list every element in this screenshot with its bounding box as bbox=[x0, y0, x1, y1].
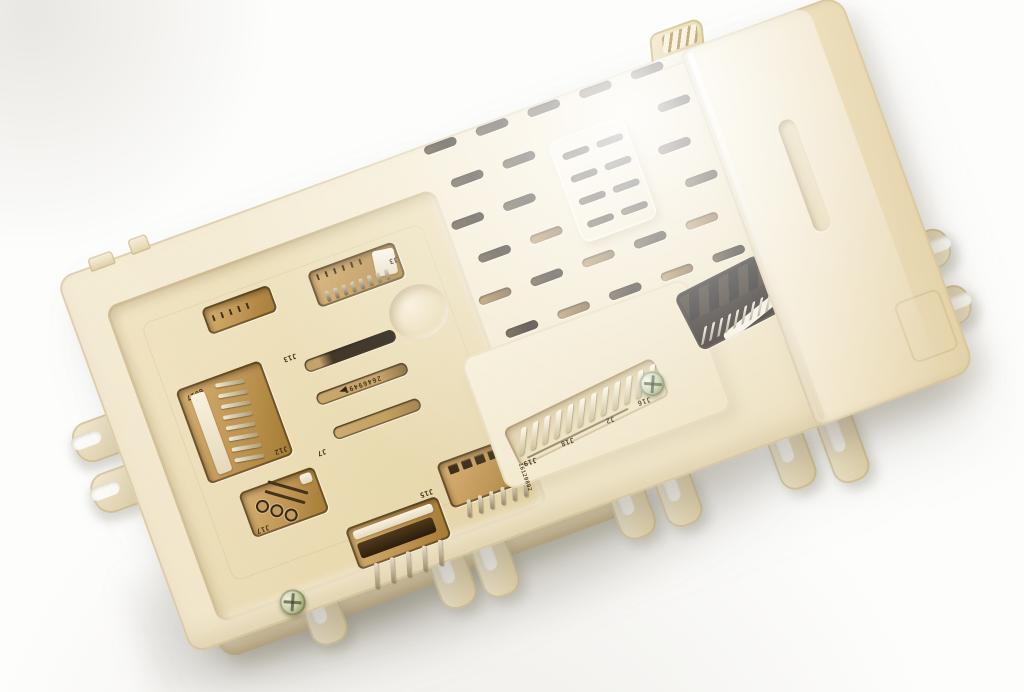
connector-pin bbox=[600, 386, 608, 417]
vent-slot bbox=[630, 60, 665, 80]
connector-pin bbox=[565, 403, 573, 434]
vent-slot bbox=[475, 117, 510, 137]
vent-slot bbox=[562, 145, 591, 161]
vent-slot bbox=[633, 230, 668, 250]
vent-slot bbox=[526, 98, 561, 118]
vent-slot bbox=[578, 190, 607, 206]
vent-slot bbox=[578, 79, 613, 99]
connector-pin bbox=[701, 325, 707, 345]
connector-pin bbox=[553, 409, 561, 440]
vent-slot bbox=[478, 286, 513, 306]
vent-slot bbox=[684, 211, 719, 231]
vent-slot bbox=[620, 200, 649, 216]
vent-slot bbox=[711, 244, 746, 264]
connector-pin bbox=[518, 426, 526, 457]
connector-pin bbox=[709, 321, 715, 341]
vent-slot bbox=[477, 244, 512, 264]
vent-slot bbox=[656, 93, 691, 113]
vent-slot bbox=[501, 150, 536, 170]
connector-pin bbox=[542, 415, 550, 446]
connector-pin bbox=[577, 397, 585, 428]
photo-stage: J3 6017 J12 26469497 J13 J7 bbox=[0, 0, 1024, 692]
vent-slot bbox=[604, 155, 633, 171]
panel-step-outline bbox=[893, 288, 960, 365]
vent-slot bbox=[586, 212, 615, 228]
vent-slot bbox=[570, 167, 599, 183]
control-board-module: J3 6017 J12 26469497 J13 J7 bbox=[56, 5, 945, 654]
vent-slot bbox=[659, 262, 694, 282]
connector-pin bbox=[612, 380, 620, 411]
vent-slot bbox=[450, 169, 485, 189]
vent-slot bbox=[612, 178, 641, 194]
connector-pin bbox=[624, 375, 632, 406]
vent-slot bbox=[423, 136, 458, 156]
vent-slot bbox=[529, 267, 564, 287]
connector-pin bbox=[589, 392, 597, 423]
vent-slot bbox=[502, 192, 537, 212]
vent-slot bbox=[595, 132, 624, 148]
vent-slot bbox=[581, 248, 616, 268]
connector-pin bbox=[530, 420, 538, 451]
vent-slot bbox=[529, 225, 564, 245]
panel-slot bbox=[776, 117, 833, 234]
vent-slot bbox=[657, 136, 692, 156]
vent-slot bbox=[684, 168, 719, 188]
vent-slot bbox=[450, 211, 485, 231]
